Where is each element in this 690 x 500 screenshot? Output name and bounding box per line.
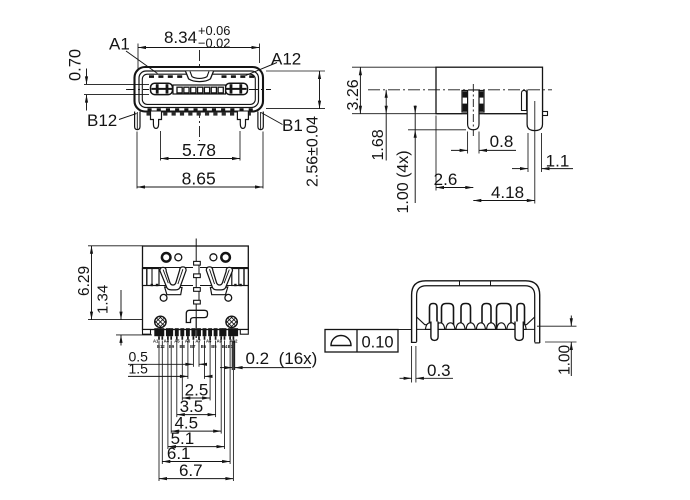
svg-text:−0.02: −0.02 xyxy=(198,35,230,50)
svg-text:A4: A4 xyxy=(164,339,170,344)
svg-text:A1: A1 xyxy=(109,35,130,54)
svg-text:6.7: 6.7 xyxy=(179,461,203,480)
svg-text:B5: B5 xyxy=(211,344,217,349)
svg-text:4.18: 4.18 xyxy=(491,183,524,202)
svg-text:5.78: 5.78 xyxy=(182,140,216,160)
svg-text:2.56±0.04: 2.56±0.04 xyxy=(305,116,322,187)
svg-text:8.34: 8.34 xyxy=(164,28,197,47)
svg-text:A7: A7 xyxy=(195,339,201,344)
svg-text:B12: B12 xyxy=(87,111,117,130)
svg-text:A12: A12 xyxy=(271,50,301,69)
svg-text:8.65: 8.65 xyxy=(182,169,216,189)
svg-text:1.1: 1.1 xyxy=(546,152,570,171)
svg-text:B12: B12 xyxy=(157,344,165,349)
svg-text:A5: A5 xyxy=(174,339,180,344)
svg-text:2.6: 2.6 xyxy=(434,170,458,189)
svg-text:A9: A9 xyxy=(217,339,223,344)
svg-text:A1: A1 xyxy=(153,339,159,344)
svg-text:3.26: 3.26 xyxy=(345,79,362,110)
svg-text:1.00: 1.00 xyxy=(557,344,574,375)
svg-text:B6: B6 xyxy=(201,344,207,349)
svg-text:B1: B1 xyxy=(282,116,303,135)
svg-text:1.68: 1.68 xyxy=(370,129,387,160)
svg-text:A8: A8 xyxy=(206,339,212,344)
svg-text:B9: B9 xyxy=(169,344,175,349)
svg-text:1.5: 1.5 xyxy=(129,361,149,377)
svg-text:A12: A12 xyxy=(230,339,238,344)
svg-text:0.3: 0.3 xyxy=(427,361,451,380)
svg-text:0.8: 0.8 xyxy=(490,132,514,151)
svg-text:0.10: 0.10 xyxy=(361,334,393,352)
svg-text:1.34: 1.34 xyxy=(95,285,112,314)
svg-text:0.70: 0.70 xyxy=(67,49,85,81)
svg-text:6.29: 6.29 xyxy=(76,266,93,296)
svg-text:0.2 (16x): 0.2 (16x) xyxy=(246,349,318,368)
svg-text:1.00 (4x): 1.00 (4x) xyxy=(395,150,412,213)
